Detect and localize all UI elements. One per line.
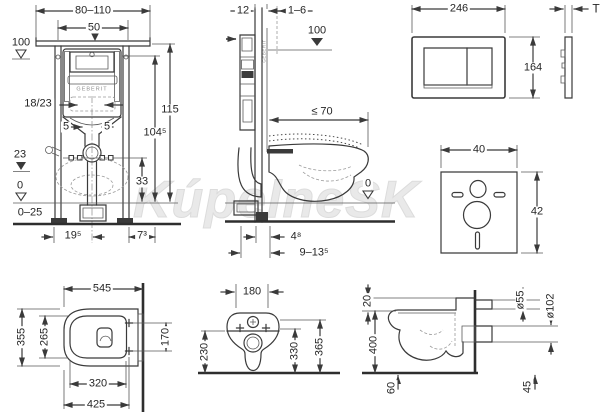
dim-wcs-floor-offset: 45 <box>523 379 534 395</box>
dim-plate-height: 164 <box>522 63 544 74</box>
dim-side-wall-lining: 1–6 <box>286 6 308 17</box>
dim-frame-offset-left: 5 <box>61 122 71 133</box>
frame-side-view <box>225 4 395 258</box>
dim-pad-height: 42 <box>529 207 545 218</box>
dim-plate-width: 246 <box>448 4 470 15</box>
dim-wcs-inlet-dia: ø55 <box>516 289 527 312</box>
dim-wcf-top-width: 180 <box>241 287 263 298</box>
dim-wcs-bottom-offset: 60 <box>387 380 398 396</box>
dim-frame-height-total: 115 <box>159 105 181 116</box>
dim-side-outlet-range: 9–13⁵ <box>297 248 330 259</box>
dim-wc-length: 545 <box>91 284 113 295</box>
insulation-pad-view <box>441 145 543 253</box>
dim-wc-bolt-distance: 425 <box>85 400 107 411</box>
flush-plate-side-profile <box>565 37 572 98</box>
dim-frame-level-0: 0 <box>15 181 25 192</box>
dim-pad-width: 40 <box>471 145 487 156</box>
dim-frame-front-depth: 7³ <box>135 231 149 242</box>
inlet-stub <box>475 300 492 309</box>
dim-frame-offset-right: 5 <box>102 122 112 133</box>
dim-frame-flush-pipe: 18/23 <box>22 99 54 110</box>
wall-and-floor <box>362 290 478 373</box>
dim-frame-floor-range: 0–25 <box>16 208 44 219</box>
dim-frame-width-range: 80–110 <box>73 6 113 17</box>
dim-side-level-0: 0 <box>363 179 373 190</box>
flush-plate-view <box>412 5 588 98</box>
dim-wcf-total-height: 365 <box>315 336 326 358</box>
dim-frame-level-100: 100 <box>10 38 32 49</box>
dim-wc-width: 355 <box>17 326 28 348</box>
dim-frame-foot-depth: 19⁵ <box>63 231 84 242</box>
dim-wc-inner-width: 265 <box>40 326 51 348</box>
wc-front-view <box>198 284 340 373</box>
dim-side-level-100: 100 <box>306 26 328 37</box>
dim-wc-bolt-spacing: 170 <box>161 326 172 348</box>
dim-frame-rail-spacing: 50 <box>86 23 102 34</box>
dim-wcf-bottom-height: 330 <box>290 340 301 362</box>
mounting-stud <box>267 149 293 154</box>
wc-side-view <box>362 285 558 389</box>
level-100-filled-triangle <box>311 38 323 46</box>
dim-wcs-seat-height: 400 <box>369 334 380 356</box>
dim-frame-height-upper: 104⁵ <box>142 128 169 139</box>
dim-wcs-outlet-dia: ø102 <box>546 291 557 320</box>
brand-logo-cistern: GEBERIT <box>76 85 107 96</box>
level-0-open-triangle <box>16 193 26 201</box>
dim-frame-level-23: 23 <box>12 150 28 161</box>
level-23-filled-triangle <box>16 162 26 170</box>
dim-side-bowl-depth: ≤ 70 <box>309 107 334 118</box>
dim-wcf-rim-height: 230 <box>200 341 211 363</box>
level-100-open-triangle <box>16 50 26 58</box>
technical-drawing-sheet: KúpelneSK <box>0 0 600 412</box>
dim-wc-inner-length: 320 <box>87 379 109 390</box>
dim-side-rail-depth: 12 <box>235 6 251 17</box>
dim-plate-thickness: T <box>590 4 600 15</box>
dim-side-outlet-offset: 4⁸ <box>289 232 304 243</box>
level-0-open-triangle-side <box>363 191 373 199</box>
dim-frame-outlet-height: 33 <box>134 177 150 188</box>
brand-logo-rail: GEBERIT <box>259 39 270 62</box>
dim-wcs-top-gap: 20 <box>363 293 374 309</box>
outlet-stub <box>475 326 492 342</box>
